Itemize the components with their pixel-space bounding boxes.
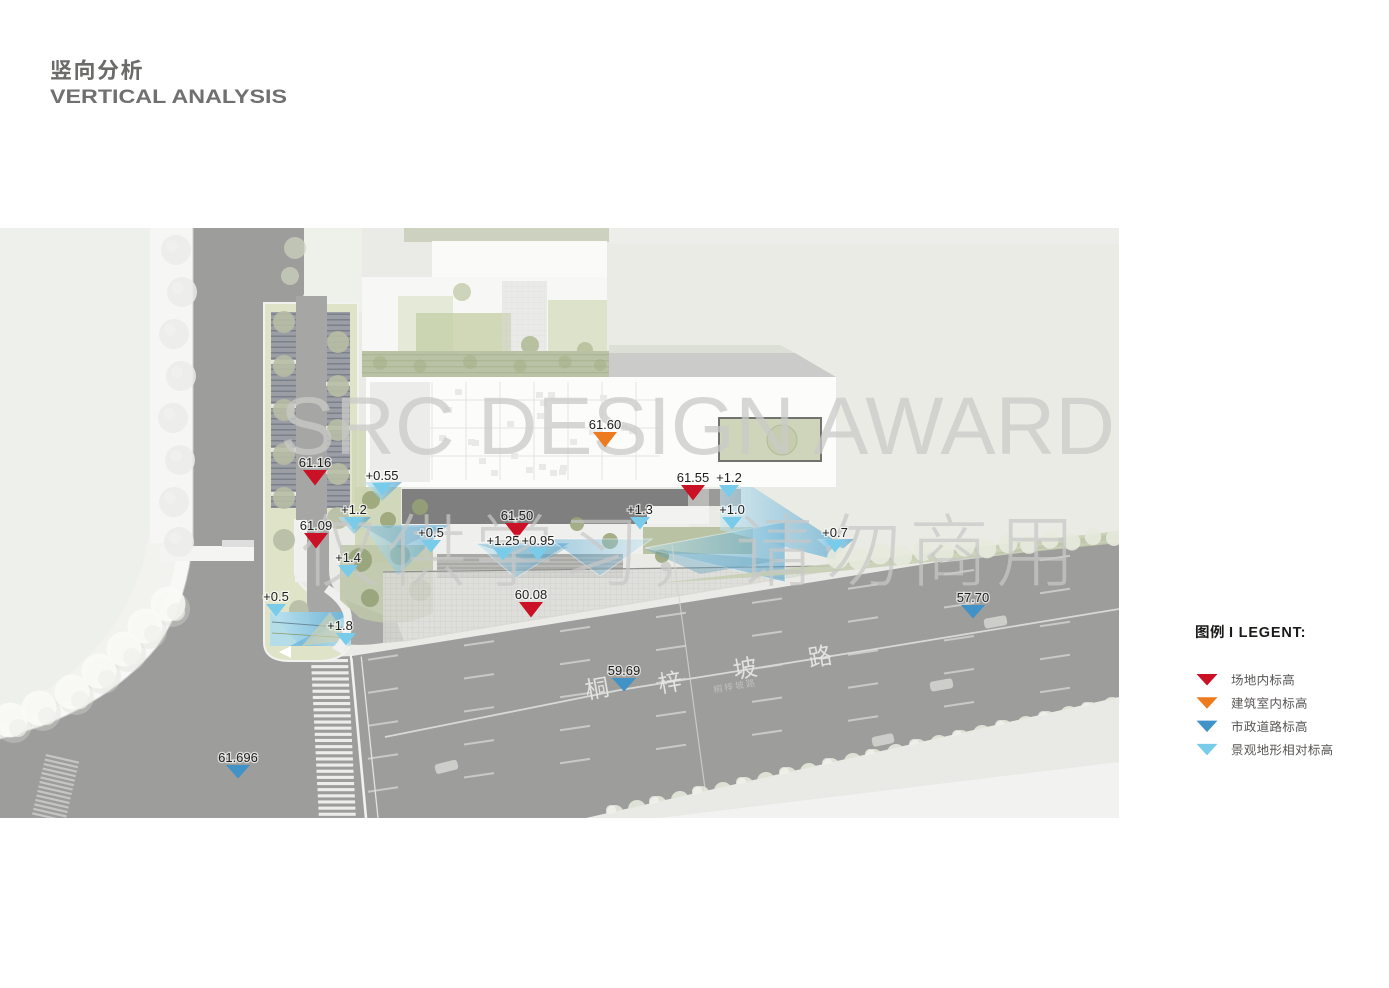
svg-text:+1.3: +1.3 [627, 502, 653, 517]
svg-text:I LEGENT:: I LEGENT: [1229, 625, 1306, 641]
svg-text:61.55: 61.55 [677, 470, 710, 485]
svg-text:+1.25: +1.25 [487, 533, 520, 548]
svg-text:61.50: 61.50 [501, 508, 534, 523]
svg-text:61.696: 61.696 [218, 750, 258, 765]
svg-text:+0.5: +0.5 [263, 589, 289, 604]
svg-text:+0.5: +0.5 [418, 525, 444, 540]
svg-text:60.08: 60.08 [515, 587, 548, 602]
svg-text:VERTICAL ANALYSIS: VERTICAL ANALYSIS [50, 86, 287, 108]
svg-text:+1.2: +1.2 [716, 470, 742, 485]
svg-text:61.09: 61.09 [300, 518, 333, 533]
svg-text:61.60: 61.60 [589, 417, 622, 432]
svg-text:+1.0: +1.0 [719, 502, 745, 517]
svg-text:+1.4: +1.4 [335, 550, 361, 565]
svg-text:59.69: 59.69 [608, 663, 641, 678]
svg-text:SRC DESIGN AWARD: SRC DESIGN AWARD [280, 381, 1115, 472]
svg-text:+0.55: +0.55 [366, 468, 399, 483]
svg-text:+0.95: +0.95 [522, 533, 555, 548]
svg-text:57.70: 57.70 [957, 590, 990, 605]
svg-text:+1.8: +1.8 [327, 618, 353, 633]
svg-text:+1.2: +1.2 [341, 502, 367, 517]
svg-text:61.16: 61.16 [299, 455, 332, 470]
svg-text:+0.7: +0.7 [822, 525, 848, 540]
